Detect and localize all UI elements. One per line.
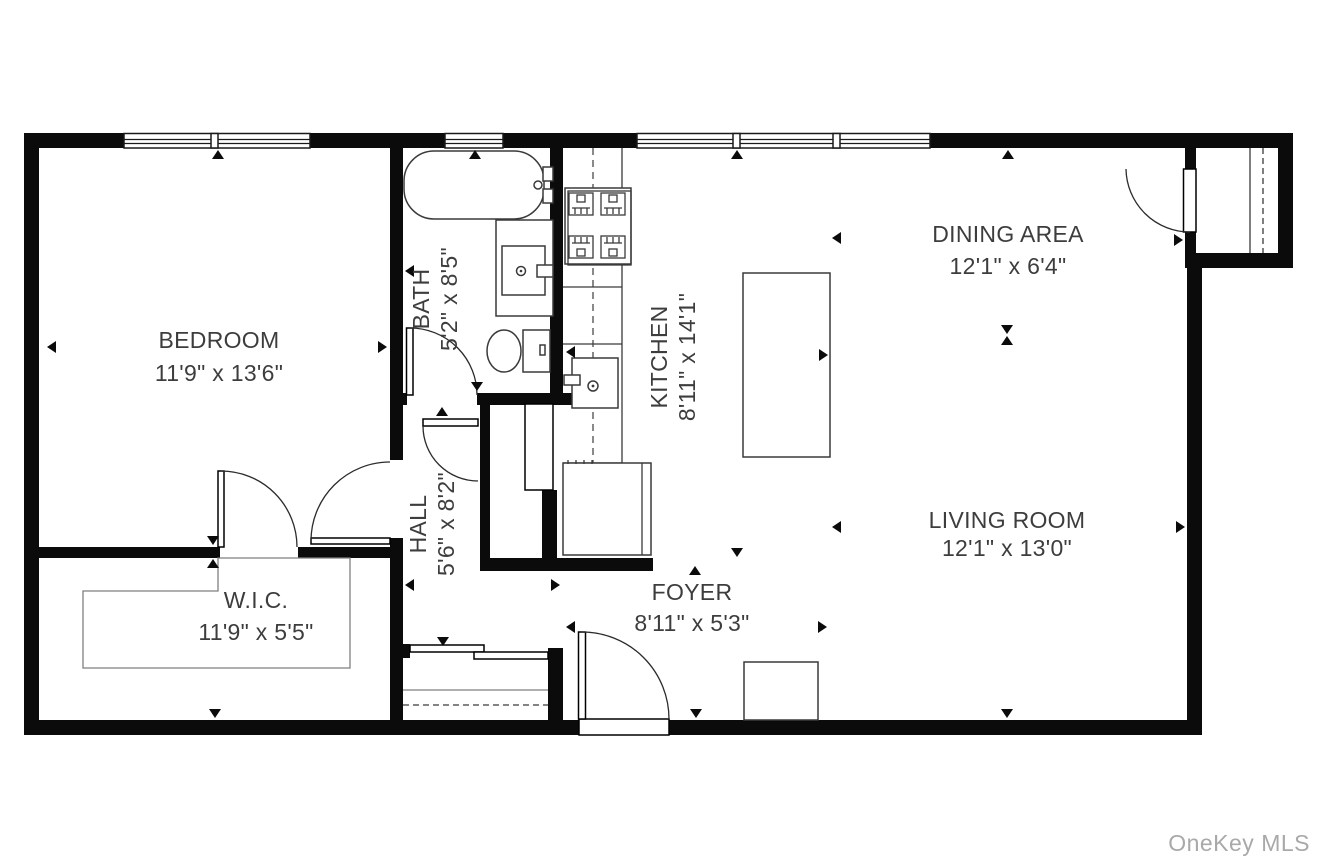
bedroom-dims: 11'9" x 13'6" — [155, 360, 283, 386]
dining-dims: 12'1" x 6'4" — [950, 253, 1067, 279]
floor-plan: BEDROOM 11'9" x 13'6" BATH 5'2" x 8'5" K… — [0, 0, 1320, 862]
wall-hall-closet-right — [542, 490, 557, 558]
wall-entry-jamb-bottom — [1185, 232, 1196, 253]
sliding-door-closet — [403, 645, 548, 705]
wall-bath-south — [477, 393, 575, 405]
wall-bath-south-jamb — [390, 393, 407, 405]
wall-foyer-closet-jamb — [397, 644, 410, 658]
toilet — [487, 330, 550, 372]
wall-left — [24, 133, 39, 735]
kitchen-island — [743, 273, 830, 457]
wic-door — [218, 471, 297, 547]
wall-wic-north-right — [298, 547, 403, 558]
stove — [565, 188, 631, 265]
wall-hall-left — [390, 538, 403, 720]
dining-entry-door — [1126, 169, 1196, 232]
foyer-cabinet — [744, 662, 818, 720]
refrigerator — [563, 460, 651, 555]
entry-closet — [1250, 148, 1263, 253]
wall-kitchen-foyer — [480, 558, 653, 571]
wall-wic-north-left — [24, 547, 220, 558]
foyer-dims: 8'11" x 5'3" — [634, 610, 749, 636]
bedroom-window — [124, 134, 310, 149]
dining-label: DINING AREA — [932, 221, 1084, 247]
living-dims: 12'1" x 13'0" — [942, 535, 1072, 561]
bath-window — [445, 134, 503, 149]
kitchen-dining-window — [637, 134, 930, 149]
foyer-label: FOYER — [652, 579, 733, 605]
hall-dims: 5'6" x 8'2" — [433, 472, 459, 576]
window-mullion — [211, 134, 218, 149]
wall-bottom-left — [24, 720, 580, 735]
kitchen-dims: 8'11" x 14'1" — [674, 293, 700, 421]
bath-label: BATH — [408, 269, 434, 330]
bedroom-door — [311, 462, 390, 544]
room-labels: BEDROOM 11'9" x 13'6" BATH 5'2" x 8'5" K… — [155, 221, 1086, 645]
wic-label: W.I.C. — [224, 587, 288, 613]
wall-bedroom-bath — [390, 148, 403, 460]
watermark: OneKey MLS — [1168, 830, 1310, 856]
wall-foyer-closet-right — [548, 648, 563, 720]
window-mullion — [833, 134, 840, 149]
wall-entry-jamb-top — [1185, 148, 1196, 169]
vanity-sink — [496, 220, 553, 316]
wall-hall-closet-left — [480, 400, 490, 563]
wall-right — [1187, 253, 1202, 735]
kitchen-label: KITCHEN — [646, 305, 672, 408]
front-door — [579, 632, 670, 735]
bathtub — [404, 151, 553, 219]
wall-entry-closet-bottom — [1185, 253, 1293, 268]
bedroom-label: BEDROOM — [159, 327, 280, 353]
floor-plan-page: BEDROOM 11'9" x 13'6" BATH 5'2" x 8'5" K… — [0, 0, 1320, 862]
walk-in-closet-outline — [83, 558, 350, 668]
kitchen-sink — [564, 358, 618, 408]
wall-right-bump — [1278, 133, 1293, 268]
hall-closet-door-leaf — [525, 404, 553, 490]
bath-dims: 5'2" x 8'5" — [436, 247, 462, 351]
hall-label: HALL — [405, 495, 431, 554]
hall-closet-door — [423, 419, 478, 481]
wall-bottom-right — [668, 720, 1202, 735]
living-label: LIVING ROOM — [929, 507, 1086, 533]
wic-dims: 11'9" x 5'5" — [198, 619, 313, 645]
window-mullion — [733, 134, 740, 149]
